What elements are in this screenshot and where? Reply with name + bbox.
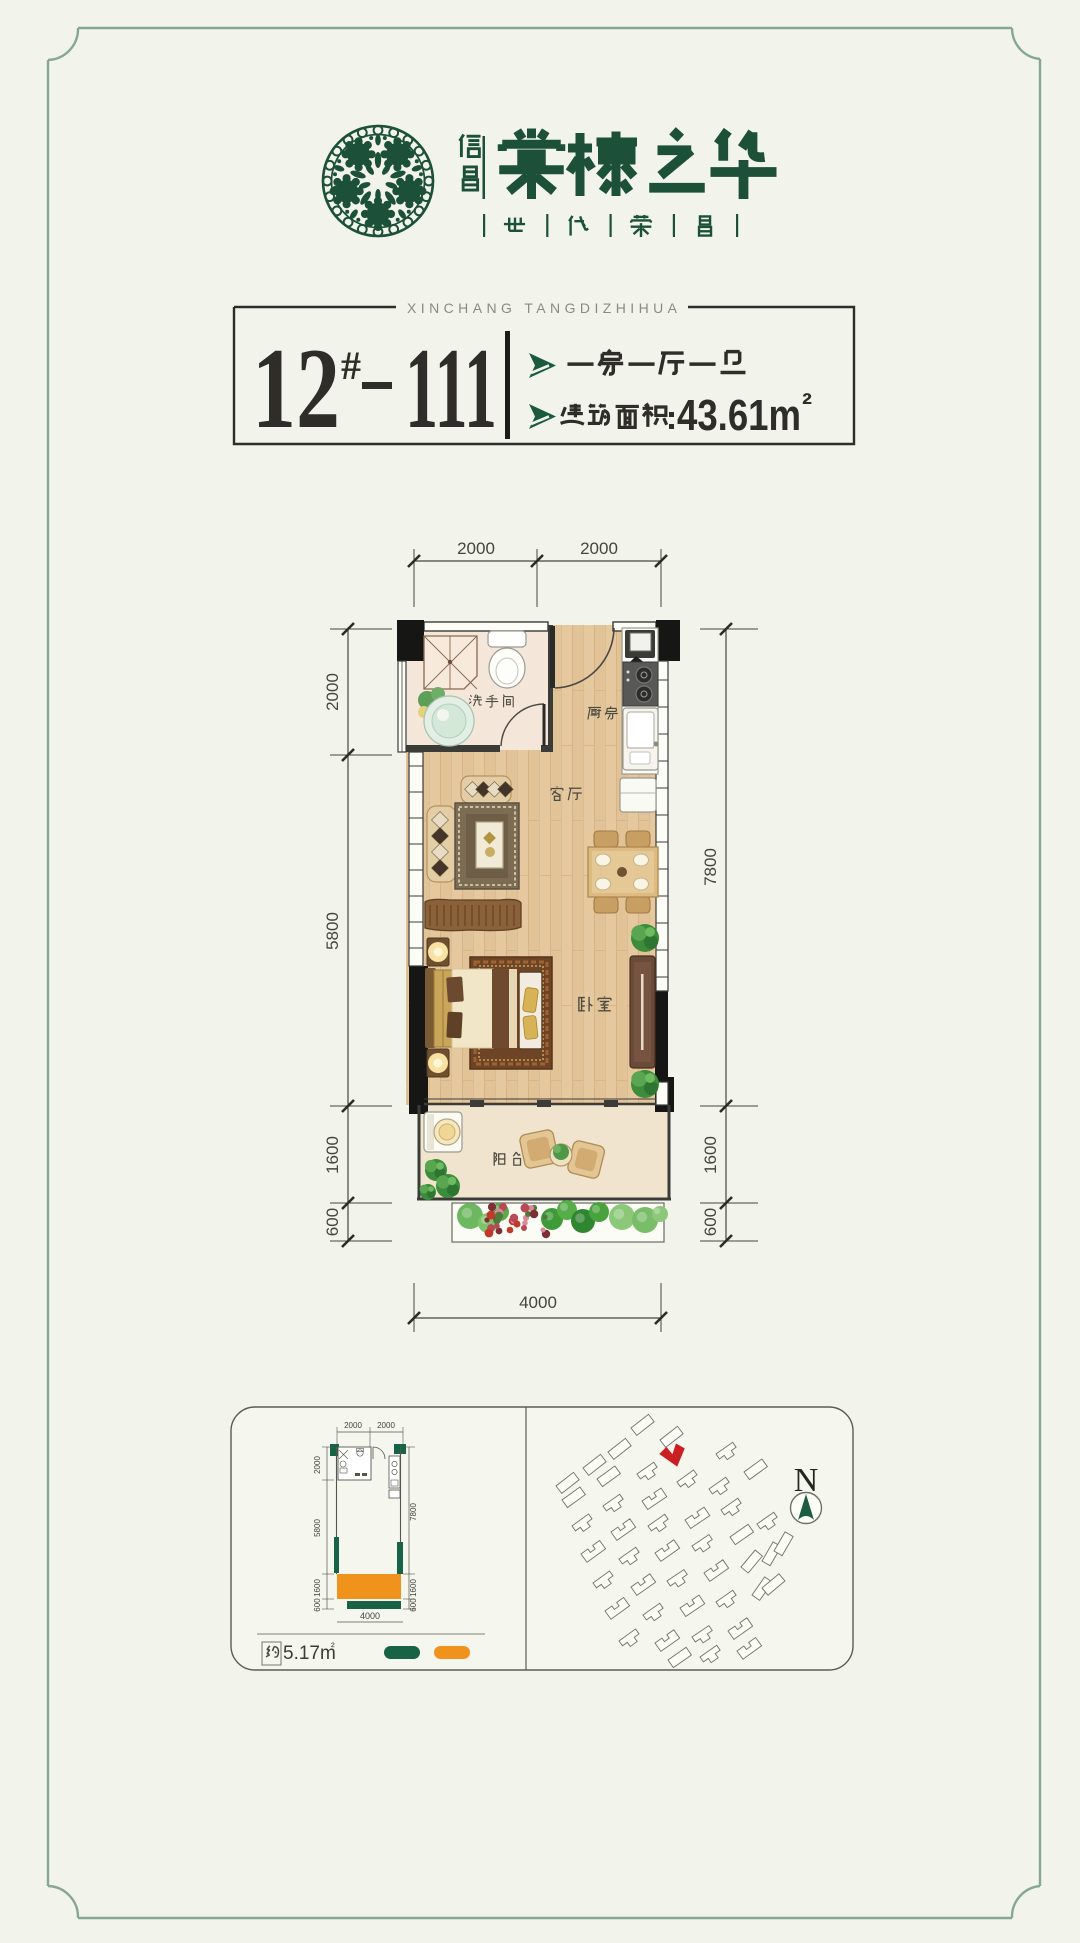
svg-text:600: 600 [323, 1208, 342, 1236]
svg-text:1600: 1600 [323, 1136, 342, 1174]
svg-text:²: ² [802, 388, 812, 421]
svg-text:²: ² [331, 1641, 335, 1653]
svg-text:600: 600 [313, 1598, 322, 1612]
svg-text:2000: 2000 [323, 673, 342, 711]
svg-text:7800: 7800 [409, 1503, 418, 1521]
svg-text:2000: 2000 [377, 1421, 395, 1430]
svg-text:600: 600 [701, 1208, 720, 1236]
svg-text:5800: 5800 [323, 912, 342, 950]
svg-text:5.17m: 5.17m [283, 1643, 336, 1664]
svg-text:2000: 2000 [313, 1456, 322, 1474]
svg-text:#: # [341, 343, 361, 388]
svg-text:1600: 1600 [701, 1136, 720, 1174]
svg-text:7800: 7800 [701, 848, 720, 886]
svg-text:2000: 2000 [457, 539, 495, 558]
svg-text:4000: 4000 [360, 1611, 380, 1621]
svg-text:111: 111 [405, 325, 497, 453]
svg-text:2000: 2000 [580, 539, 618, 558]
svg-text:5800: 5800 [313, 1519, 322, 1537]
svg-text:12: 12 [252, 325, 340, 453]
svg-text:600: 600 [409, 1598, 418, 1612]
svg-text:43.61m: 43.61m [677, 391, 801, 440]
svg-text:4000: 4000 [519, 1293, 557, 1312]
svg-text:1600: 1600 [313, 1579, 322, 1597]
svg-text:1600: 1600 [409, 1579, 418, 1597]
svg-text:2000: 2000 [344, 1421, 362, 1430]
